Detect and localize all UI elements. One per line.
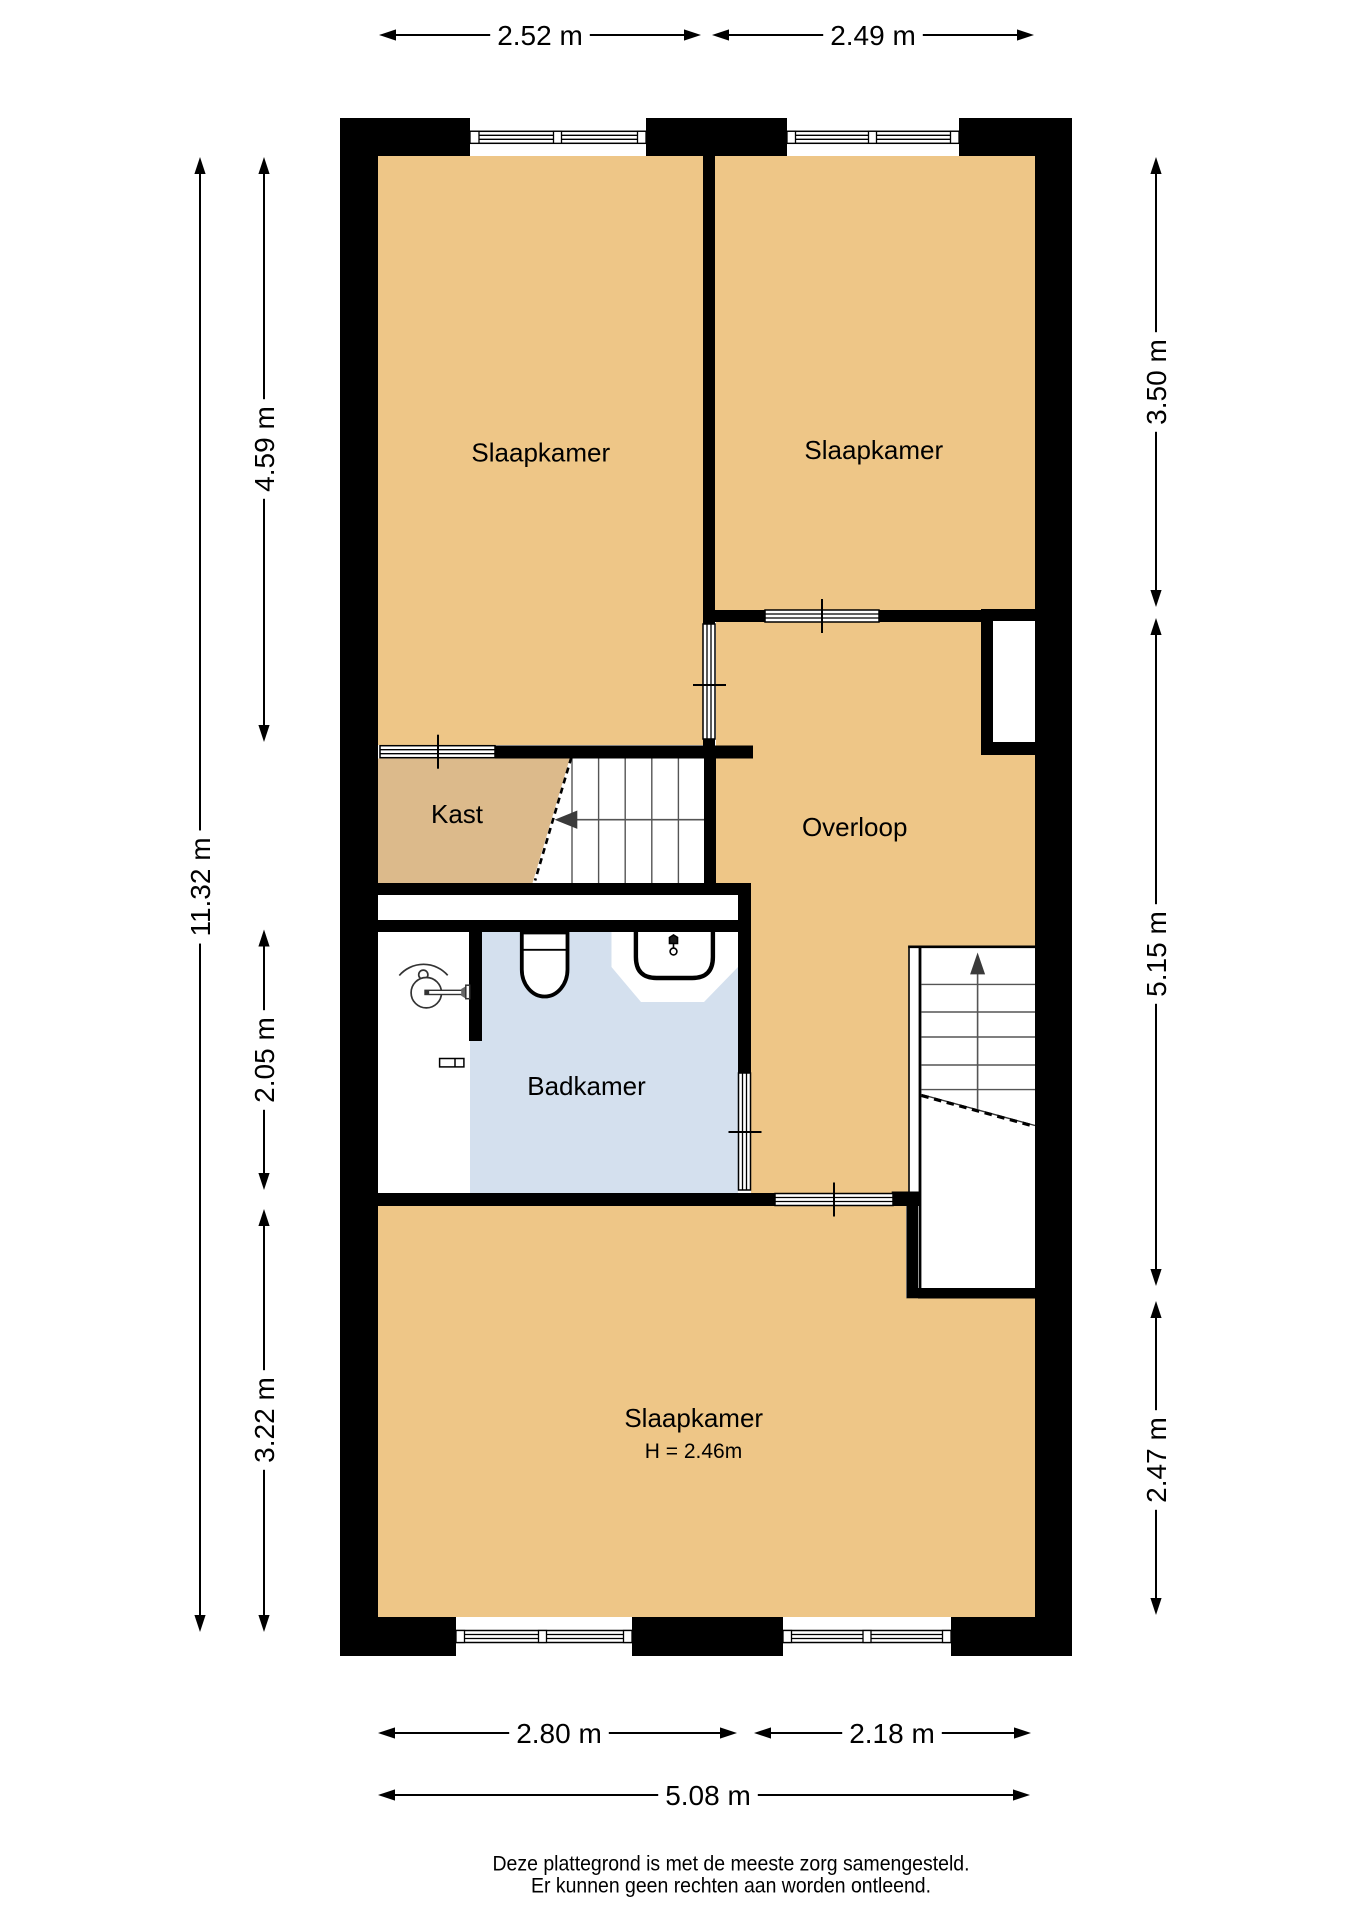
svg-text:3.50 m: 3.50 m	[1141, 339, 1172, 425]
svg-text:4.59 m: 4.59 m	[249, 406, 280, 492]
svg-text:11.32 m: 11.32 m	[185, 837, 216, 936]
svg-text:H = 2.46m: H = 2.46m	[645, 1440, 742, 1463]
svg-text:2.80 m: 2.80 m	[516, 1718, 602, 1749]
svg-text:5.15 m: 5.15 m	[1141, 911, 1172, 997]
svg-text:Slaapkamer: Slaapkamer	[471, 438, 610, 468]
svg-text:Overloop: Overloop	[802, 812, 908, 842]
svg-text:5.08 m: 5.08 m	[665, 1780, 751, 1811]
svg-text:3.22 m: 3.22 m	[249, 1377, 280, 1463]
svg-text:2.18 m: 2.18 m	[849, 1718, 935, 1749]
svg-text:2.47 m: 2.47 m	[1141, 1417, 1172, 1503]
svg-text:Deze plattegrond is met de mee: Deze plattegrond is met de meeste zorg s…	[493, 1853, 970, 1876]
svg-text:Slaapkamer: Slaapkamer	[624, 1403, 763, 1433]
svg-text:2.05 m: 2.05 m	[249, 1017, 280, 1103]
svg-text:Er kunnen geen rechten aan wor: Er kunnen geen rechten aan worden ontlee…	[531, 1875, 931, 1898]
svg-text:Slaapkamer: Slaapkamer	[804, 435, 943, 465]
svg-text:Kast: Kast	[431, 799, 484, 829]
svg-text:2.49 m: 2.49 m	[830, 20, 916, 51]
svg-text:2.52 m: 2.52 m	[497, 20, 583, 51]
svg-text:Badkamer: Badkamer	[527, 1071, 646, 1101]
